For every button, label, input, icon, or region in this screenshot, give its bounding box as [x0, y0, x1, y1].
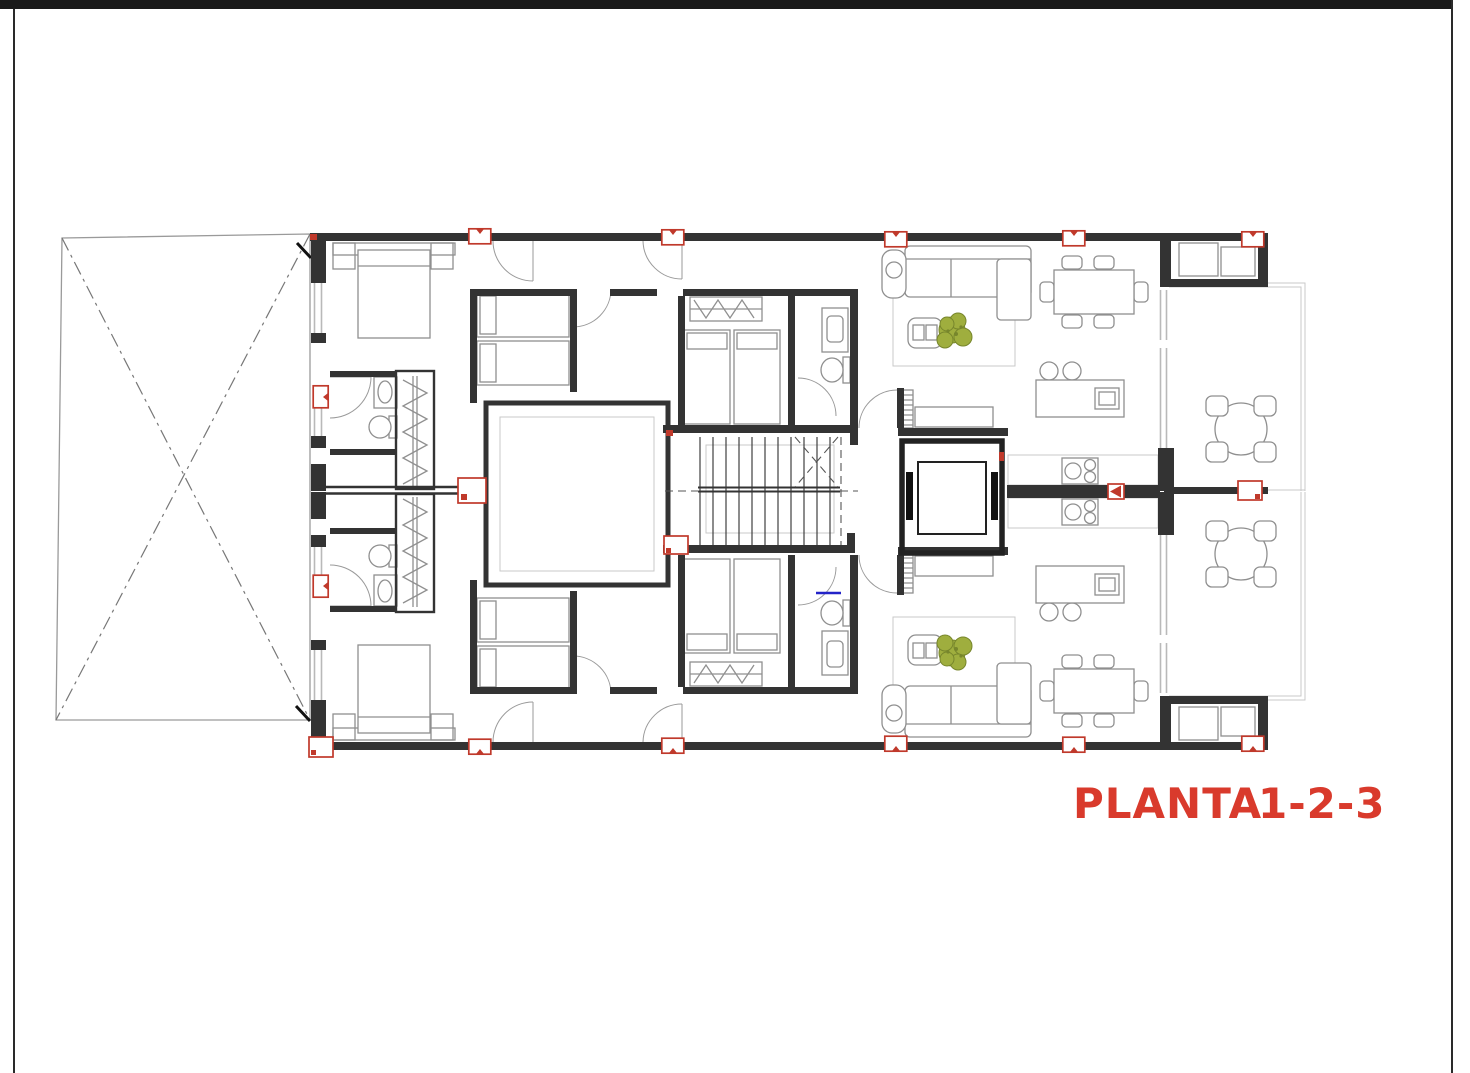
core	[309, 234, 1305, 757]
staircase	[663, 425, 858, 553]
floor-plan: PLANTA 1-2-3	[0, 0, 1470, 1073]
site-plot	[56, 234, 311, 721]
apartment-bottom	[310, 492, 1305, 754]
central-patio	[486, 403, 668, 585]
plan-title-number: 1-2-3	[1258, 779, 1386, 828]
plan-title: PLANTA 1-2-3	[1073, 779, 1386, 828]
top-border-bar	[0, 0, 1452, 9]
page: PLANTA 1-2-3	[0, 0, 1470, 1073]
plan-title-word: PLANTA	[1073, 779, 1262, 828]
elevator-shaft	[902, 441, 1004, 553]
elevator-car	[918, 462, 986, 534]
